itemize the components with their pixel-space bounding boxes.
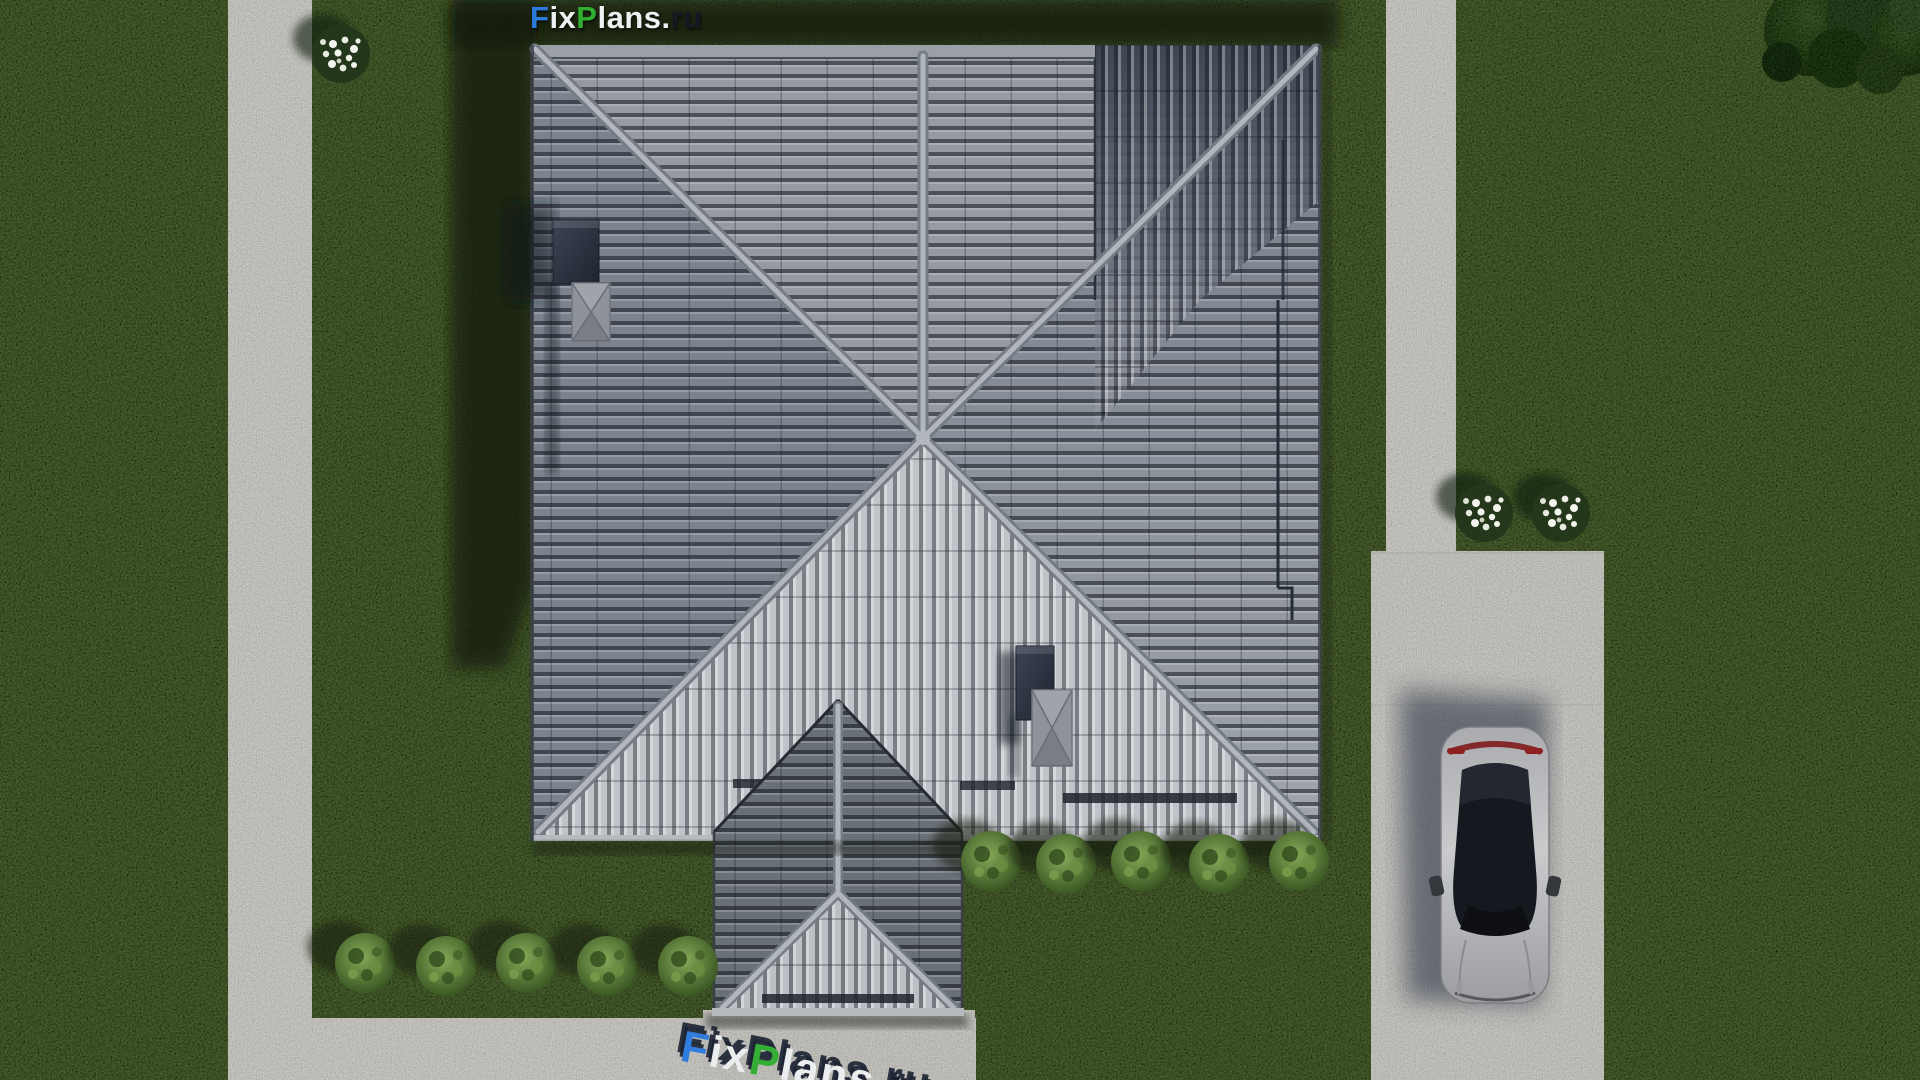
right-path [1386,0,1456,553]
car [1400,690,1562,1005]
main-roof [530,45,1322,841]
aerial-render: FixPlans.ru FixPlans.ru [0,0,1920,1080]
ridge-cap-top [533,45,1095,58]
logo-letter-p: P [576,0,597,36]
logo-letters-lans: lans [597,0,661,36]
logo-letters-ru: ru [671,0,703,36]
left-path [228,0,312,1080]
corner-tree [1762,0,1920,94]
fixplans-logo: FixPlans.ru [530,0,703,36]
logo-letters-ix: ix [549,0,576,36]
logo-dot: . [662,0,671,36]
scene-canvas [0,0,1920,1080]
skylight-2 [1032,690,1072,766]
logo-letter-f: F [530,0,549,36]
skylight-1 [572,283,610,341]
